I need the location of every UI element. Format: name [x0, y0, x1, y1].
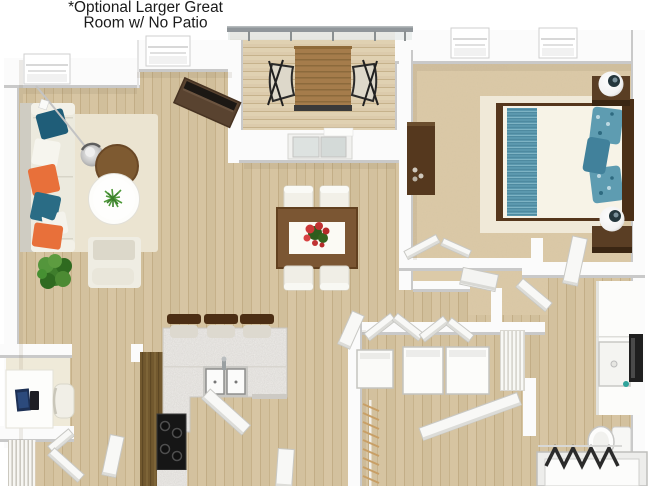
svg-text:*Optional Larger Great: *Optional Larger Great: [68, 0, 224, 16]
svg-text:Room w/ No Patio: Room w/ No Patio: [83, 15, 207, 32]
